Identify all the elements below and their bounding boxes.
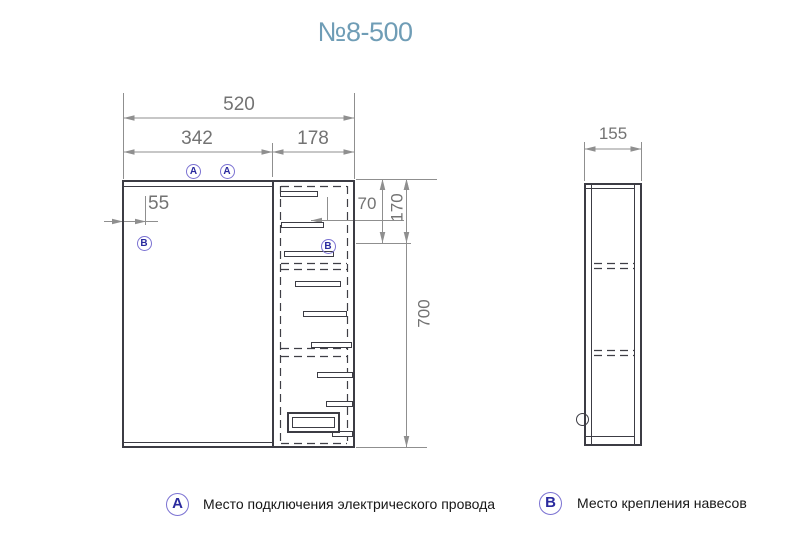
legend-a-marker: A xyxy=(166,493,189,516)
mirror-divider xyxy=(272,182,274,446)
mirror-bottom-edge xyxy=(124,442,272,443)
dimension-and-hidden-lines xyxy=(0,0,800,554)
legend-a-label: Место подключения электрического провода xyxy=(203,493,495,516)
shelf-edge-8 xyxy=(326,401,353,407)
mirror-top-edge xyxy=(124,186,272,187)
shelf-edge-1 xyxy=(280,191,318,197)
marker-b-cabinet: B xyxy=(321,239,336,254)
legend-b-label: Место крепления навесов xyxy=(577,492,747,515)
dim-cabinet-width: 178 xyxy=(283,128,343,150)
dim-height: 700 xyxy=(417,292,432,336)
dim-mirror-width: 342 xyxy=(167,128,227,150)
marker-b-mirror: B xyxy=(137,236,152,251)
shelf-edge-4 xyxy=(295,281,341,287)
dim-depth: 155 xyxy=(588,124,638,144)
side-inner-bottom xyxy=(586,436,634,437)
shelf-edge-2 xyxy=(281,222,324,228)
dim-shelf-top: 70 xyxy=(353,194,381,214)
side-view-dimension-lines xyxy=(585,142,642,181)
lamp-housing-inner xyxy=(292,417,335,428)
marker-a-2: A xyxy=(220,164,235,179)
dim-shelf-second: 170 xyxy=(390,188,405,228)
marker-a-1: A xyxy=(186,164,201,179)
dim-hinge-offset: 55 xyxy=(148,193,169,215)
shelf-edge-5 xyxy=(303,311,347,317)
shelf-edge-7 xyxy=(317,372,353,378)
dim-overall-width: 520 xyxy=(214,94,264,116)
side-inner-right xyxy=(634,185,635,444)
shelf-edge-6 xyxy=(311,342,352,348)
side-inner-left xyxy=(591,185,592,444)
technical-drawing: №8-500 xyxy=(0,0,800,554)
legend-b-marker: B xyxy=(539,492,562,515)
side-inner-top xyxy=(586,188,634,189)
